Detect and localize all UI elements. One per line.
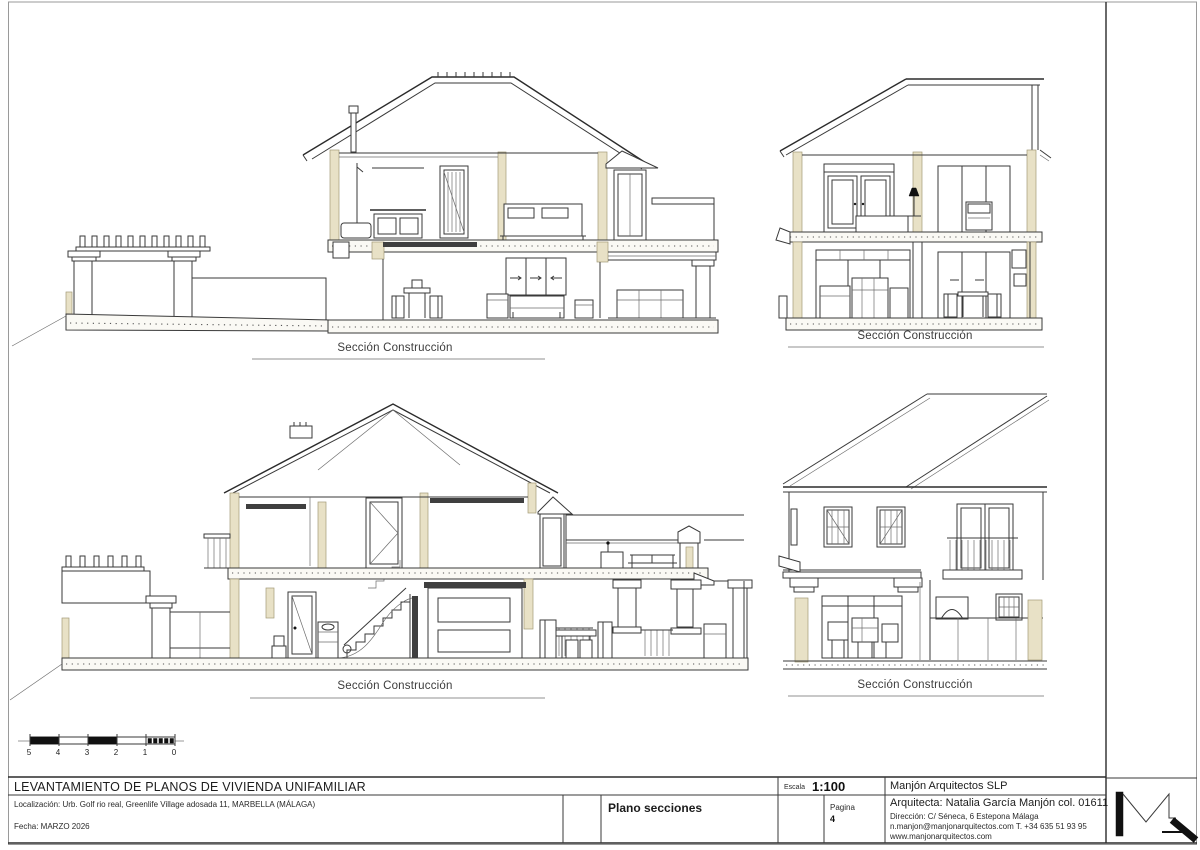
date-line: Fecha: MARZO 2026	[14, 822, 90, 831]
garden-wall	[12, 236, 330, 346]
section-label-bottom-left: Sección Construcción	[250, 680, 540, 692]
floor-slab	[228, 568, 708, 579]
scale-value: 1:100	[812, 779, 845, 794]
roof	[303, 72, 646, 169]
scale-number-0: 0	[169, 748, 179, 757]
roof	[224, 404, 558, 493]
scale-number-4: 4	[53, 748, 63, 757]
upper-floor	[789, 492, 1043, 580]
upper-floor	[330, 150, 714, 240]
drawing-sheet: Sección Construcción Sección Construcció…	[0, 0, 1200, 850]
location-line: Localización: Urb. Golf rio real, Greenl…	[14, 800, 315, 809]
architect-line: Arquitecta: Natalia García Manjón col. 0…	[890, 797, 1108, 809]
sheet-line-art	[0, 0, 1200, 850]
sheet-border	[8, 2, 1197, 845]
scale-label: Escala	[784, 784, 805, 791]
section-drawing-top-right	[776, 79, 1051, 347]
roof	[780, 79, 1051, 161]
sheet-name: Plano secciones	[608, 801, 702, 815]
section-drawing-bottom-left	[10, 404, 752, 700]
contact-line: n.manjon@manjonarquitectos.com T. +34 63…	[890, 822, 1087, 831]
scale-number-5: 5	[24, 748, 34, 757]
scale-number-1: 1	[140, 748, 150, 757]
page-number: 4	[830, 814, 835, 824]
ground-slab	[328, 320, 718, 333]
graphic-scale-bar	[18, 734, 184, 746]
section-label-top-right: Sección Construcción	[790, 330, 1040, 342]
section-label-top-left: Sección Construcción	[250, 342, 540, 354]
page-label: Pagina	[830, 803, 855, 812]
ground-slab	[62, 658, 748, 670]
scale-number-3: 3	[82, 748, 92, 757]
section-drawing-top-left	[12, 72, 718, 359]
lower-floor	[230, 579, 752, 659]
address-line: Dirección: C/ Séneca, 6 Estepona Málaga	[890, 812, 1039, 821]
scale-number-2: 2	[111, 748, 121, 757]
roof	[783, 394, 1049, 492]
project-title: LEVANTAMIENTO DE PLANOS DE VIVIENDA UNIF…	[14, 780, 366, 794]
firm-name: Manjón Arquitectos SLP	[890, 780, 1007, 792]
elevation-drawing-bottom-right	[779, 394, 1049, 696]
firm-logo-icon	[1116, 792, 1196, 840]
website-line: www.manjonarquitectos.com	[890, 832, 992, 841]
section-label-bottom-right: Sección Construcción	[790, 679, 1040, 691]
lower-floor	[793, 242, 1036, 320]
upper-floor	[793, 150, 1036, 232]
lower-floor	[333, 242, 716, 320]
garden-wall	[62, 556, 230, 658]
